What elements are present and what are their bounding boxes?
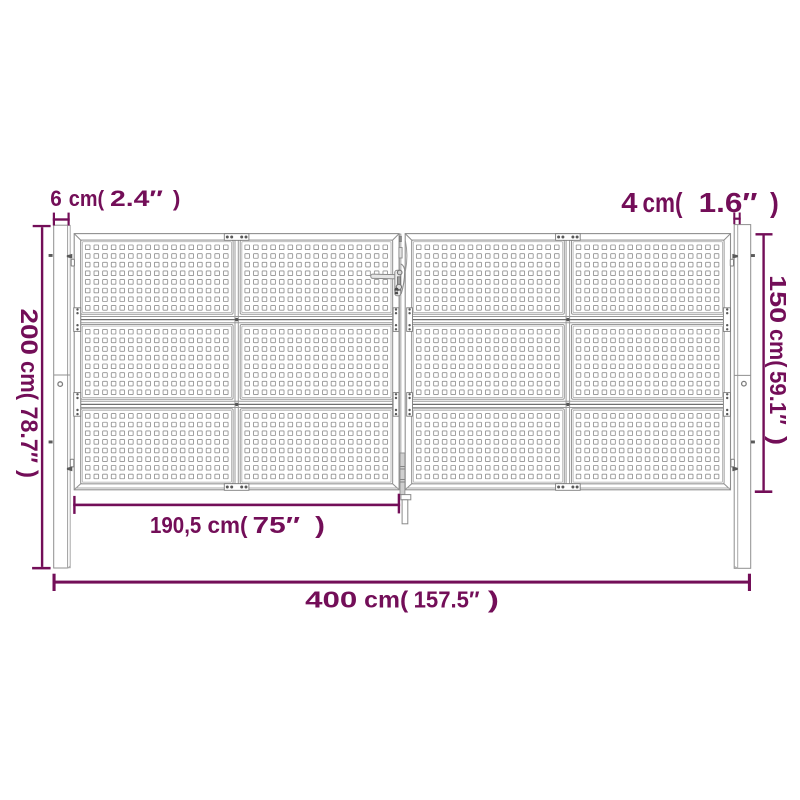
svg-text:200cm(78.7″): 200cm(78.7″): [15, 309, 42, 479]
svg-text:6cm(2.4″): 6cm(2.4″): [50, 186, 180, 211]
svg-text:4cm(1.6″): 4cm(1.6″): [621, 187, 779, 218]
svg-text:190,5cm(75″): 190,5cm(75″): [150, 512, 325, 538]
svg-text:150cm(59.1″): 150cm(59.1″): [765, 275, 791, 445]
svg-text:400cm(157.5″): 400cm(157.5″): [305, 586, 499, 612]
